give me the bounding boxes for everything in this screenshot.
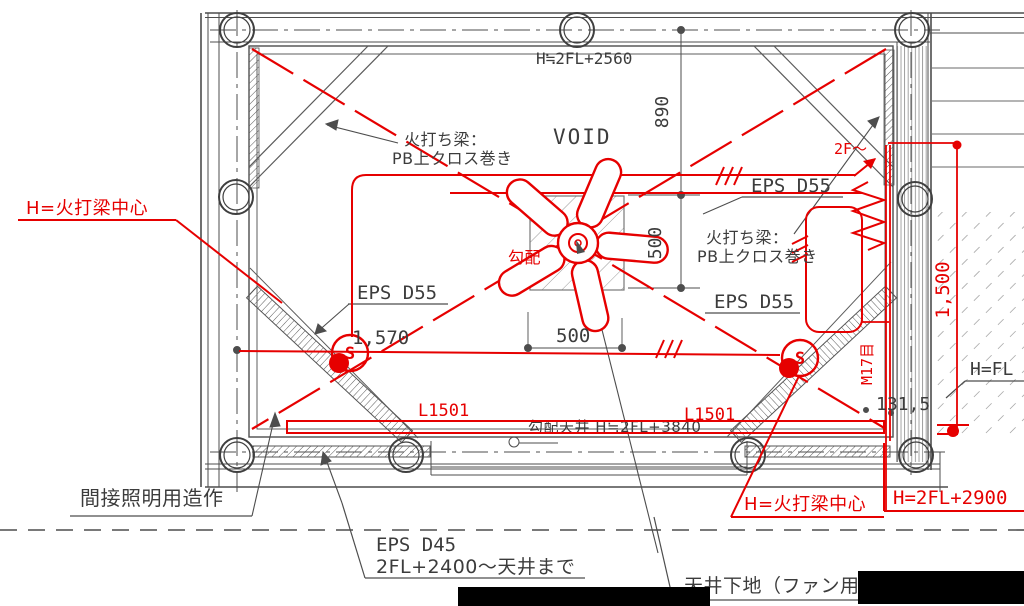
eps-d55-left-label: EPS D55 bbox=[357, 282, 437, 304]
void-label: VOID bbox=[553, 125, 612, 149]
h-2fl-2900-label: H=2FL+2900 bbox=[893, 487, 1007, 509]
arrowhead-brace-right bbox=[868, 117, 879, 128]
s2-label: S bbox=[795, 349, 805, 369]
ceiling-plan-drawing: 勾配天井 H≒2FL+3840 bbox=[0, 0, 1024, 606]
plan-canvas: 勾配天井 H≒2FL+3840 bbox=[0, 0, 1024, 606]
brace-right-label-2: PB上クロス巻き bbox=[697, 247, 818, 266]
l1501-left-label: L1501 bbox=[418, 401, 469, 421]
dim-1500: 1,500 bbox=[932, 261, 954, 318]
redaction-box-1 bbox=[458, 587, 710, 606]
ceiling-base-fan-label: 天井下地（ファン用） bbox=[684, 575, 879, 597]
h-brace-center-right-label: H=火打梁中心 bbox=[744, 494, 866, 515]
arrowhead-indirect bbox=[270, 413, 280, 427]
dim-500-horizontal: 500 bbox=[556, 325, 590, 347]
h-brace-center-left-label: H=火打梁中心 bbox=[26, 198, 148, 219]
indirect-lighting-label: 間接照明用造作 bbox=[80, 486, 224, 510]
eps-d45-label-2: 2FL+2400～天井まで bbox=[376, 556, 575, 578]
height-top-label: H≒2FL+2560 bbox=[536, 49, 632, 68]
redaction-box-2 bbox=[858, 571, 1024, 604]
slope-label: 勾配 bbox=[508, 248, 541, 267]
eps-d55-right-upper-label: EPS D55 bbox=[751, 175, 831, 197]
dim-890: 890 bbox=[652, 96, 673, 129]
arrowhead-brace-top bbox=[326, 120, 338, 130]
brace-top-label-1: 火打ち梁： bbox=[404, 130, 487, 149]
dim-500-vertical: 500 bbox=[645, 227, 666, 260]
to-2f-label: 2F～ bbox=[834, 140, 867, 158]
eps-d55-right-lower-label: EPS D55 bbox=[714, 291, 794, 313]
l1501-right-label: L1501 bbox=[684, 405, 735, 425]
h-fl-partial-label: H=FL bbox=[970, 359, 1014, 380]
ceiling-fan bbox=[494, 155, 669, 334]
eps-d45-label-1: EPS D45 bbox=[376, 534, 456, 556]
brace-right-label-1: 火打ち梁： bbox=[706, 228, 789, 247]
brace-top-label-2: PB上クロス巻き bbox=[392, 149, 513, 168]
dim-131-5: 131,5 bbox=[876, 394, 930, 415]
m17-label: M17目 bbox=[858, 343, 876, 385]
dim-1570: 1,570 bbox=[352, 327, 409, 349]
